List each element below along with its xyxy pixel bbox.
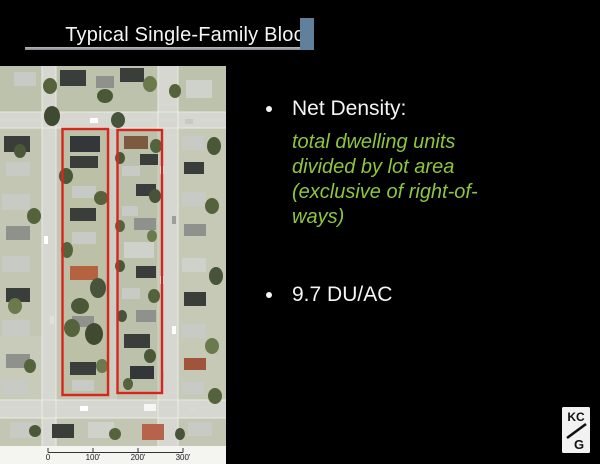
bullet-du-ac: 9.7 DU/AC [252, 282, 588, 308]
aerial-photo [0, 66, 226, 446]
definition-line: (exclusive of right-of- [292, 180, 588, 205]
definition-line: total dwelling units [292, 130, 588, 155]
title-bar: Typical Single-Family Block [25, 0, 314, 50]
scale-label-300: 300' [176, 453, 191, 462]
king-county-gis-logo-icon: KC G [562, 407, 590, 453]
logo-text-top: KC [567, 410, 585, 424]
page-title: Typical Single-Family Block [25, 0, 314, 47]
title-accent-square [300, 18, 314, 50]
net-density-definition: total dwelling units divided by lot area… [292, 130, 588, 230]
houses-left [2, 136, 30, 394]
scale-label-200: 200' [131, 453, 146, 462]
scale-label-0: 0 [46, 453, 50, 462]
bullet-icon [266, 106, 272, 112]
definition-line: divided by lot area [292, 155, 588, 180]
density-value-label: 9.7 DU/AC [292, 283, 392, 306]
title-underline [25, 47, 314, 50]
map-scale-bar: 0 100' 200' 300' [0, 446, 226, 464]
net-density-label: Net Density: [292, 97, 406, 120]
bullet-net-density: Net Density: [252, 96, 588, 122]
bullet-icon [266, 292, 272, 298]
aerial-photo-figure: 0 100' 200' 300' [0, 66, 226, 464]
logo-text-bottom: G [574, 437, 584, 452]
slide: Typical Single-Family Block [0, 0, 600, 464]
scale-label-100: 100' [86, 453, 101, 462]
slide-body: Net Density: total dwelling units divide… [252, 96, 588, 308]
definition-line: ways) [292, 205, 588, 230]
scale-ticks-line [0, 446, 226, 464]
